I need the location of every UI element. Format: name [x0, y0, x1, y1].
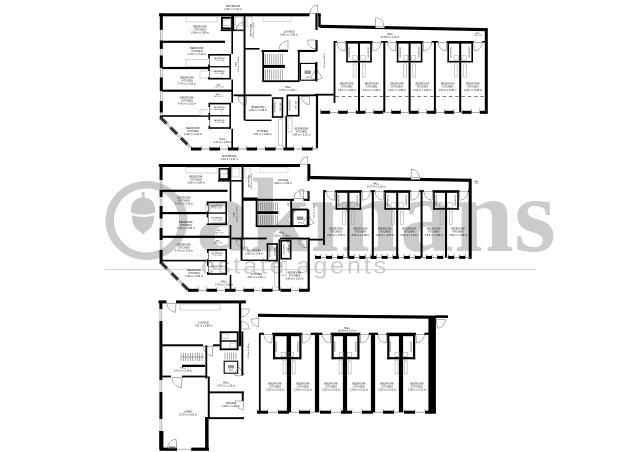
- svg-text:2.55 m x 5.22 m: 2.55 m x 5.22 m: [350, 389, 368, 392]
- svg-text:4.76 m x 2.52 m: 4.76 m x 2.52 m: [178, 103, 196, 106]
- svg-text:6.10 m x 1.50 m: 6.10 m x 1.50 m: [238, 56, 240, 72]
- svg-text:2.54 m x 4.08 m: 2.54 m x 4.08 m: [388, 89, 406, 92]
- svg-text:2.39 m x 2.31 m: 2.39 m x 2.31 m: [224, 8, 241, 11]
- svg-text:SHOWER/WC: SHOWER/WC: [450, 46, 452, 58]
- svg-text:SHOWER/WC: SHOWER/WC: [290, 99, 292, 111]
- svg-text:2.06 m x 2.28 m: 2.06 m x 2.28 m: [245, 252, 263, 255]
- svg-text:4.59 m x 1.09 m: 4.59 m x 1.09 m: [324, 53, 326, 68]
- svg-text:2.55 m x 5.22 m: 2.55 m x 5.22 m: [408, 389, 426, 392]
- svg-text:2.47 x 1.02: 2.47 x 1.02: [214, 243, 223, 245]
- svg-text:SHOWER/WC: SHOWER/WC: [276, 340, 278, 352]
- svg-text:14.72 m x 1.15 m: 14.72 m x 1.15 m: [367, 185, 385, 188]
- svg-text:6.10 m x 1.50 m: 6.10 m x 1.50 m: [236, 206, 238, 222]
- svg-text:SHOWER/WC: SHOWER/WC: [418, 46, 420, 58]
- svg-text:1.71 x 1.06: 1.71 x 1.06: [215, 60, 224, 62]
- svg-text:2.54 m x 4.08 m: 2.54 m x 4.08 m: [400, 234, 418, 237]
- svg-text:1.98 x 1.08: 1.98 x 1.08: [280, 103, 282, 111]
- svg-text:4.76 m x 2.55 m: 4.76 m x 2.55 m: [177, 227, 195, 230]
- svg-text:1.34: 1.34: [475, 183, 478, 185]
- svg-text:2.54 m x 4.08 m: 2.54 m x 4.08 m: [363, 89, 381, 92]
- svg-text:4.76 m x 3.30 m: 4.76 m x 3.30 m: [188, 53, 206, 56]
- svg-text:3.61 m x 2.06 m: 3.61 m x 2.06 m: [253, 133, 271, 136]
- svg-text:1.71 x 1.06: 1.71 x 1.06: [213, 268, 222, 270]
- svg-text:2.54 m x 4.08 m: 2.54 m x 4.08 m: [338, 89, 356, 92]
- svg-text:3.91 m x 2.39 m: 3.91 m x 2.39 m: [174, 370, 192, 373]
- svg-text:1.71 x 1.06: 1.71 x 1.06: [213, 255, 222, 257]
- svg-text:SHOWER/WC: SHOWER/WC: [368, 46, 370, 58]
- svg-text:SHOWER/WC: SHOWER/WC: [357, 194, 359, 206]
- svg-text:4.76 m x 2.52 m: 4.76 m x 2.52 m: [175, 250, 193, 253]
- svg-text:SHOWER/WC: SHOWER/WC: [455, 194, 457, 206]
- svg-text:2.55 m x 5.22 m: 2.55 m x 5.22 m: [266, 389, 284, 392]
- svg-text:2.47 x 1.13: 2.47 x 1.13: [215, 87, 224, 89]
- svg-text:2.06 m x 2.28 m: 2.06 m x 2.28 m: [249, 109, 267, 112]
- svg-text:SHOWER/WC: SHOWER/WC: [270, 246, 272, 258]
- svg-text:2.54 m x 4.08 m: 2.54 m x 4.08 m: [376, 234, 394, 237]
- svg-text:3.86 m x 2.31 m: 3.86 m x 2.31 m: [285, 278, 303, 281]
- svg-text:SHOWER/WC: SHOWER/WC: [298, 340, 300, 352]
- svg-text:2.55 m x 5.22 m: 2.55 m x 5.22 m: [294, 389, 312, 392]
- svg-text:SHOWER/WC: SHOWER/WC: [387, 194, 389, 206]
- svg-text:ENTRY: ENTRY: [169, 446, 176, 448]
- svg-text:1.71 x 1.06: 1.71 x 1.06: [215, 73, 224, 75]
- svg-text:2.54 m x 4.08 m: 2.54 m x 4.08 m: [413, 89, 431, 92]
- svg-text:2.55 m x 5.22 m: 2.55 m x 5.22 m: [378, 389, 396, 392]
- svg-text:2.54 m x 4.08 m: 2.54 m x 4.08 m: [327, 234, 345, 237]
- svg-text:3.98 m x 2.85 m: 3.98 m x 2.85 m: [191, 32, 209, 35]
- svg-text:1.71 x 1.06: 1.71 x 1.06: [213, 208, 222, 210]
- svg-text:16.35 m x 1.15 m: 16.35 m x 1.15 m: [381, 36, 399, 39]
- svg-text:2.54 m x 4.08 m: 2.54 m x 4.08 m: [425, 234, 443, 237]
- svg-text:SHOWER/WC: SHOWER/WC: [469, 46, 471, 58]
- svg-text:SHOWER/WC: SHOWER/WC: [349, 46, 351, 58]
- svg-text:SHOWER/WC: SHOWER/WC: [411, 340, 413, 352]
- svg-text:3.86 m x 2.31 m: 3.86 m x 2.31 m: [292, 134, 310, 137]
- svg-text:SHOWER/WC: SHOWER/WC: [284, 243, 286, 255]
- svg-text:SHOWER/WC: SHOWER/WC: [339, 194, 341, 206]
- svg-text:2.54 m x 4.08 m: 2.54 m x 4.08 m: [464, 89, 482, 92]
- svg-text:1.98x1.08: 1.98x1.08: [275, 248, 277, 255]
- svg-text:2.47 x 1.13: 2.47 x 1.13: [215, 232, 224, 234]
- svg-text:5.36 m x 1.08 m: 5.36 m x 1.08 m: [273, 235, 290, 238]
- svg-text:2.47 x 1.02: 2.47 x 1.02: [214, 96, 223, 98]
- svg-text:2.39 m x 2.31 m: 2.39 m x 2.31 m: [221, 158, 238, 161]
- svg-text:SHOWER/WC: SHOWER/WC: [335, 340, 337, 352]
- svg-text:4.09 m x 2.01 m: 4.09 m x 2.01 m: [222, 405, 240, 408]
- svg-text:1.98x1.08: 1.98x1.08: [289, 245, 291, 252]
- svg-text:SHOWER/WC: SHOWER/WC: [406, 194, 408, 206]
- svg-text:2.46 m x 2.23 m: 2.46 m x 2.23 m: [185, 275, 203, 278]
- svg-text:5.36 m x 1.08 m: 5.36 m x 1.08 m: [279, 89, 296, 92]
- svg-text:2.46 m x 2.23 m: 2.46 m x 2.23 m: [184, 133, 202, 136]
- svg-text:1.71 x 1.06: 1.71 x 1.06: [215, 109, 224, 111]
- svg-text:3.86 m x 2.95 m: 3.86 m x 2.95 m: [274, 182, 292, 185]
- svg-text:1.34 x 1.15: 1.34 x 1.15: [474, 35, 482, 37]
- svg-text:4.59 m x 1.09 m: 4.59 m x 1.09 m: [251, 173, 253, 189]
- svg-text:2.47 m x 1.66 m: 2.47 m x 1.66 m: [213, 141, 231, 144]
- svg-text:3.98 m x 2.85 m: 3.98 m x 2.85 m: [187, 182, 205, 185]
- svg-text:2.54 m x 4.08 m: 2.54 m x 4.08 m: [352, 234, 370, 237]
- svg-text:7.91 m x 2.89 m: 7.91 m x 2.89 m: [195, 324, 213, 327]
- svg-text:SHOWER/WC: SHOWER/WC: [400, 46, 402, 58]
- svg-text:5.75 m x 0.82 m: 5.75 m x 0.82 m: [179, 413, 197, 416]
- svg-text:1.98 x 1.08: 1.98 x 1.08: [296, 101, 298, 109]
- svg-text:4.76 m x 2.30 m: 4.76 m x 2.30 m: [175, 203, 193, 206]
- svg-text:SHOWER/WC: SHOWER/WC: [275, 101, 277, 113]
- svg-text:3.61 m x 2.06 m: 3.61 m x 2.06 m: [247, 276, 265, 279]
- svg-text:SHOWER/WC: SHOWER/WC: [356, 340, 358, 352]
- svg-text:3.57 m x 1.15 m: 3.57 m x 1.15 m: [217, 385, 235, 388]
- svg-text:16.30 m x 1.14 m: 16.30 m x 1.14 m: [338, 330, 356, 333]
- svg-text:2.54 m x 4.08 m: 2.54 m x 4.08 m: [439, 89, 457, 92]
- svg-text:2.54 m x 4.08 m: 2.54 m x 4.08 m: [449, 234, 467, 237]
- svg-text:HALL: HALL: [233, 210, 236, 216]
- svg-text:4.76 m x 2.55 m: 4.76 m x 2.55 m: [178, 83, 196, 86]
- svg-text:2.55 m x 5.22 m: 2.55 m x 5.22 m: [322, 389, 340, 392]
- svg-text:HALL: HALL: [234, 60, 237, 66]
- svg-text:SHOWER/WC: SHOWER/WC: [436, 194, 438, 206]
- svg-text:4.59 m x 1.09 m: 4.59 m x 1.09 m: [313, 203, 315, 218]
- svg-text:1.71 x 1.06: 1.71 x 1.06: [215, 122, 224, 124]
- svg-text:4.59 m x 1.09 m: 4.59 m x 1.09 m: [248, 343, 250, 358]
- svg-text:SHOWER/WC: SHOWER/WC: [390, 340, 392, 352]
- svg-text:4.59 m x 1.09 m: 4.59 m x 1.09 m: [253, 22, 255, 38]
- svg-text:1.71 x 1.06: 1.71 x 1.06: [213, 220, 222, 222]
- svg-text:3.86 m x 2.95 m: 3.86 m x 2.95 m: [280, 33, 298, 36]
